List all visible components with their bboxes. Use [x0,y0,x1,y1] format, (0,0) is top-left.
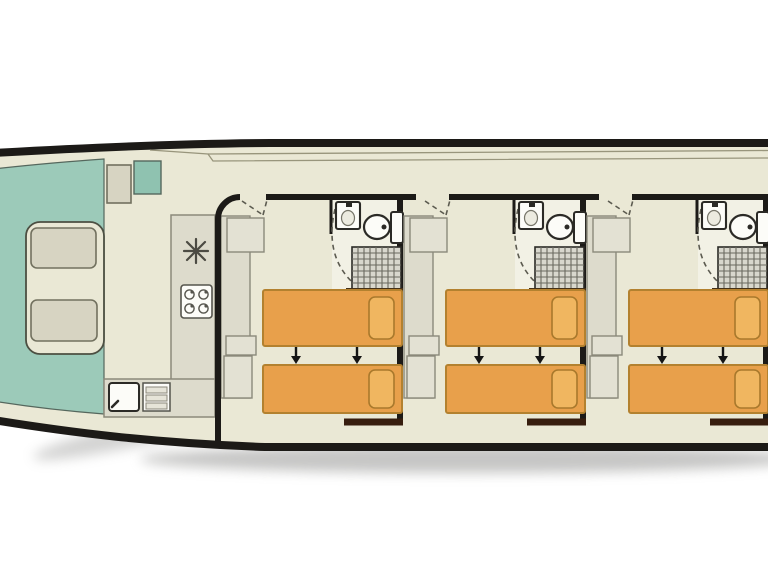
bench-cushion [31,300,97,341]
bench-cushion [31,228,96,268]
boat-deck-plan [0,0,768,576]
helm-seat [107,165,131,203]
deck-plan-canvas [0,0,768,576]
drawer-unit [143,383,170,411]
fridge-icon [184,239,208,263]
hob-icon [181,285,212,318]
entry-step-box [134,161,161,194]
